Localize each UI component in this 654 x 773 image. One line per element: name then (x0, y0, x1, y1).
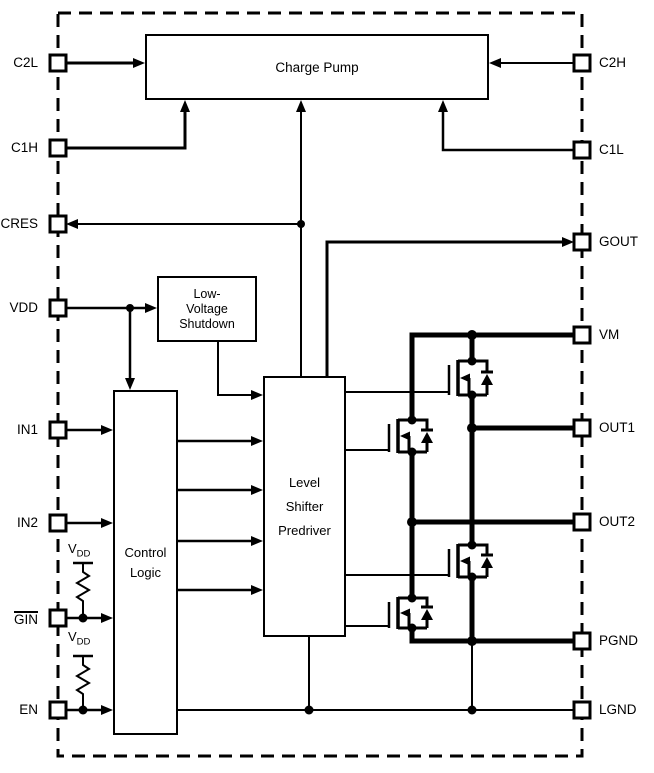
pin-label-en: EN (19, 702, 38, 718)
charge-pump-block: Charge Pump (145, 34, 489, 100)
pin-label-vm: VM (599, 327, 619, 343)
pin-square-cres (50, 216, 66, 232)
pin-square-c1h (50, 140, 66, 156)
control-to-levelshifter-wires (178, 441, 253, 590)
pin-square-c1l (574, 142, 590, 158)
vdd-supply-label-en: VDD (68, 629, 90, 651)
pin-square-vm (574, 327, 590, 343)
pin-square-in2 (50, 515, 66, 531)
pin-label-in2: IN2 (17, 515, 38, 531)
vdd-supply-label-gin: VDD (68, 541, 90, 563)
pin-label-c2h: C2H (599, 55, 626, 71)
gout-wire (327, 242, 562, 376)
pin-square-c2h (574, 55, 590, 71)
pin-square-c2l (50, 55, 66, 71)
pin-label-c1l: C1L (599, 142, 624, 158)
pin-label-in1: IN1 (17, 422, 38, 438)
vdd-wires (66, 308, 147, 380)
pin-square-out2 (574, 514, 590, 530)
pin-label-vdd: VDD (9, 300, 38, 316)
pin-label-lgnd: LGND (599, 702, 637, 718)
pin-label-gin: GIN (14, 611, 38, 627)
control-logic-block: Control Logic (113, 390, 178, 735)
level-shifter-predriver-block: Level Shifter Predriver (263, 376, 346, 637)
pin-label-pgnd: PGND (599, 633, 638, 649)
pin-label-gout: GOUT (599, 234, 638, 250)
pin-label-c2l: C2L (13, 55, 38, 71)
block-diagram: Charge Pump Low- Voltage Shutdown Contro… (0, 0, 654, 773)
charge-pump-label: Charge Pump (275, 60, 358, 75)
pin-label-cres: CRES (0, 216, 38, 232)
shutdown-output-wire (218, 342, 253, 395)
pin-square-vdd (50, 300, 66, 316)
pin-square-out1 (574, 420, 590, 436)
pin-label-out1: OUT1 (599, 420, 635, 436)
charge-pump-wires (66, 63, 574, 376)
ground-wires (178, 637, 574, 710)
pin-square-in1 (50, 422, 66, 438)
pin-square-en (50, 702, 66, 718)
pullup-resistor-en (73, 656, 93, 710)
pin-square-lgnd (574, 702, 590, 718)
low-voltage-shutdown-block: Low- Voltage Shutdown (157, 276, 257, 342)
pin-label-out2: OUT2 (599, 514, 635, 530)
gin-overline-label: GIN (14, 611, 38, 626)
pin-square-gin (50, 610, 66, 626)
input-wires (66, 430, 103, 710)
power-stage-wires (412, 335, 574, 641)
pullup-resistor-gin (73, 563, 93, 618)
pin-label-c1h: C1H (11, 140, 38, 156)
pin-square-pgnd (574, 633, 590, 649)
pin-square-gout (574, 234, 590, 250)
